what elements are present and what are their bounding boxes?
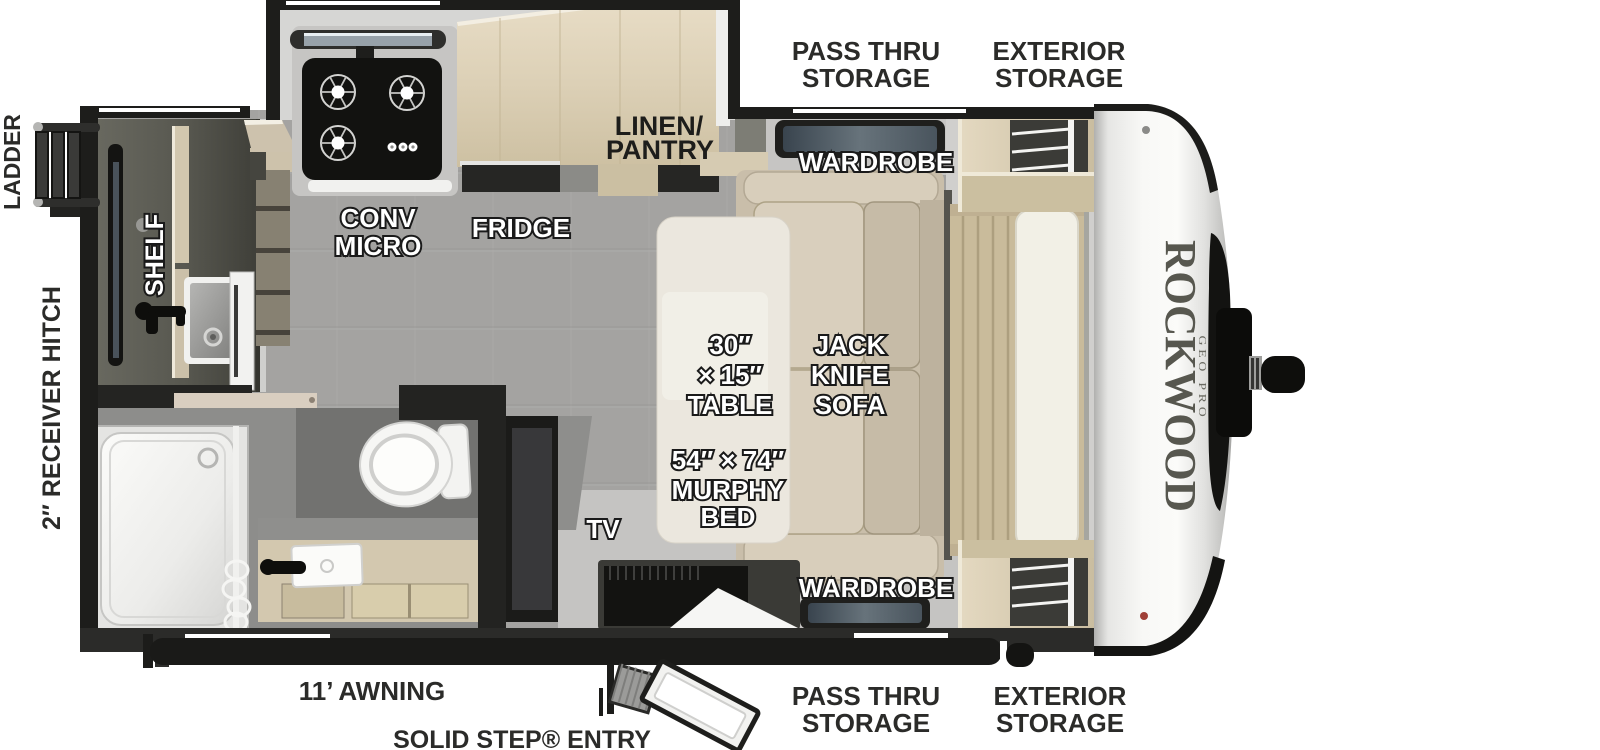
svg-text:KNIFE: KNIFE <box>811 360 889 390</box>
svg-text:EXTERIOR: EXTERIOR <box>993 36 1126 66</box>
svg-text:PANTRY: PANTRY <box>606 135 714 165</box>
svg-text:LADDER: LADDER <box>0 114 25 210</box>
svg-text:WARDROBE: WARDROBE <box>799 147 954 177</box>
svg-text:STORAGE: STORAGE <box>802 63 930 93</box>
svg-text:PASS THRU: PASS THRU <box>792 681 940 711</box>
svg-text:2″ RECEIVER HITCH: 2″ RECEIVER HITCH <box>38 286 66 530</box>
svg-text:54″ × 74″: 54″ × 74″ <box>672 445 784 475</box>
svg-text:TV: TV <box>586 514 620 544</box>
svg-text:MURPHY: MURPHY <box>672 475 785 505</box>
svg-text:PASS THRU: PASS THRU <box>792 36 940 66</box>
svg-text:STORAGE: STORAGE <box>996 708 1124 738</box>
svg-text:FRIDGE: FRIDGE <box>472 213 570 243</box>
svg-text:EXTERIOR: EXTERIOR <box>994 681 1127 711</box>
svg-text:SOLID STEP® ENTRY: SOLID STEP® ENTRY <box>393 726 651 750</box>
svg-text:JACK: JACK <box>815 330 886 360</box>
svg-text:GEO PRO: GEO PRO <box>1196 336 1208 421</box>
svg-text:CONV: CONV <box>340 203 416 233</box>
svg-text:TABLE: TABLE <box>688 390 773 420</box>
svg-text:STORAGE: STORAGE <box>995 63 1123 93</box>
svg-text:× 15″: × 15″ <box>698 360 762 390</box>
svg-text:SHELF: SHELF <box>141 214 169 296</box>
svg-text:MICRO: MICRO <box>335 231 422 261</box>
svg-text:WARDROBE: WARDROBE <box>799 573 954 603</box>
svg-text:30″: 30″ <box>709 330 750 360</box>
svg-text:STORAGE: STORAGE <box>802 708 930 738</box>
svg-text:BED: BED <box>701 502 756 532</box>
svg-text:11’ AWNING: 11’ AWNING <box>299 676 445 706</box>
svg-text:SOFA: SOFA <box>815 390 886 420</box>
